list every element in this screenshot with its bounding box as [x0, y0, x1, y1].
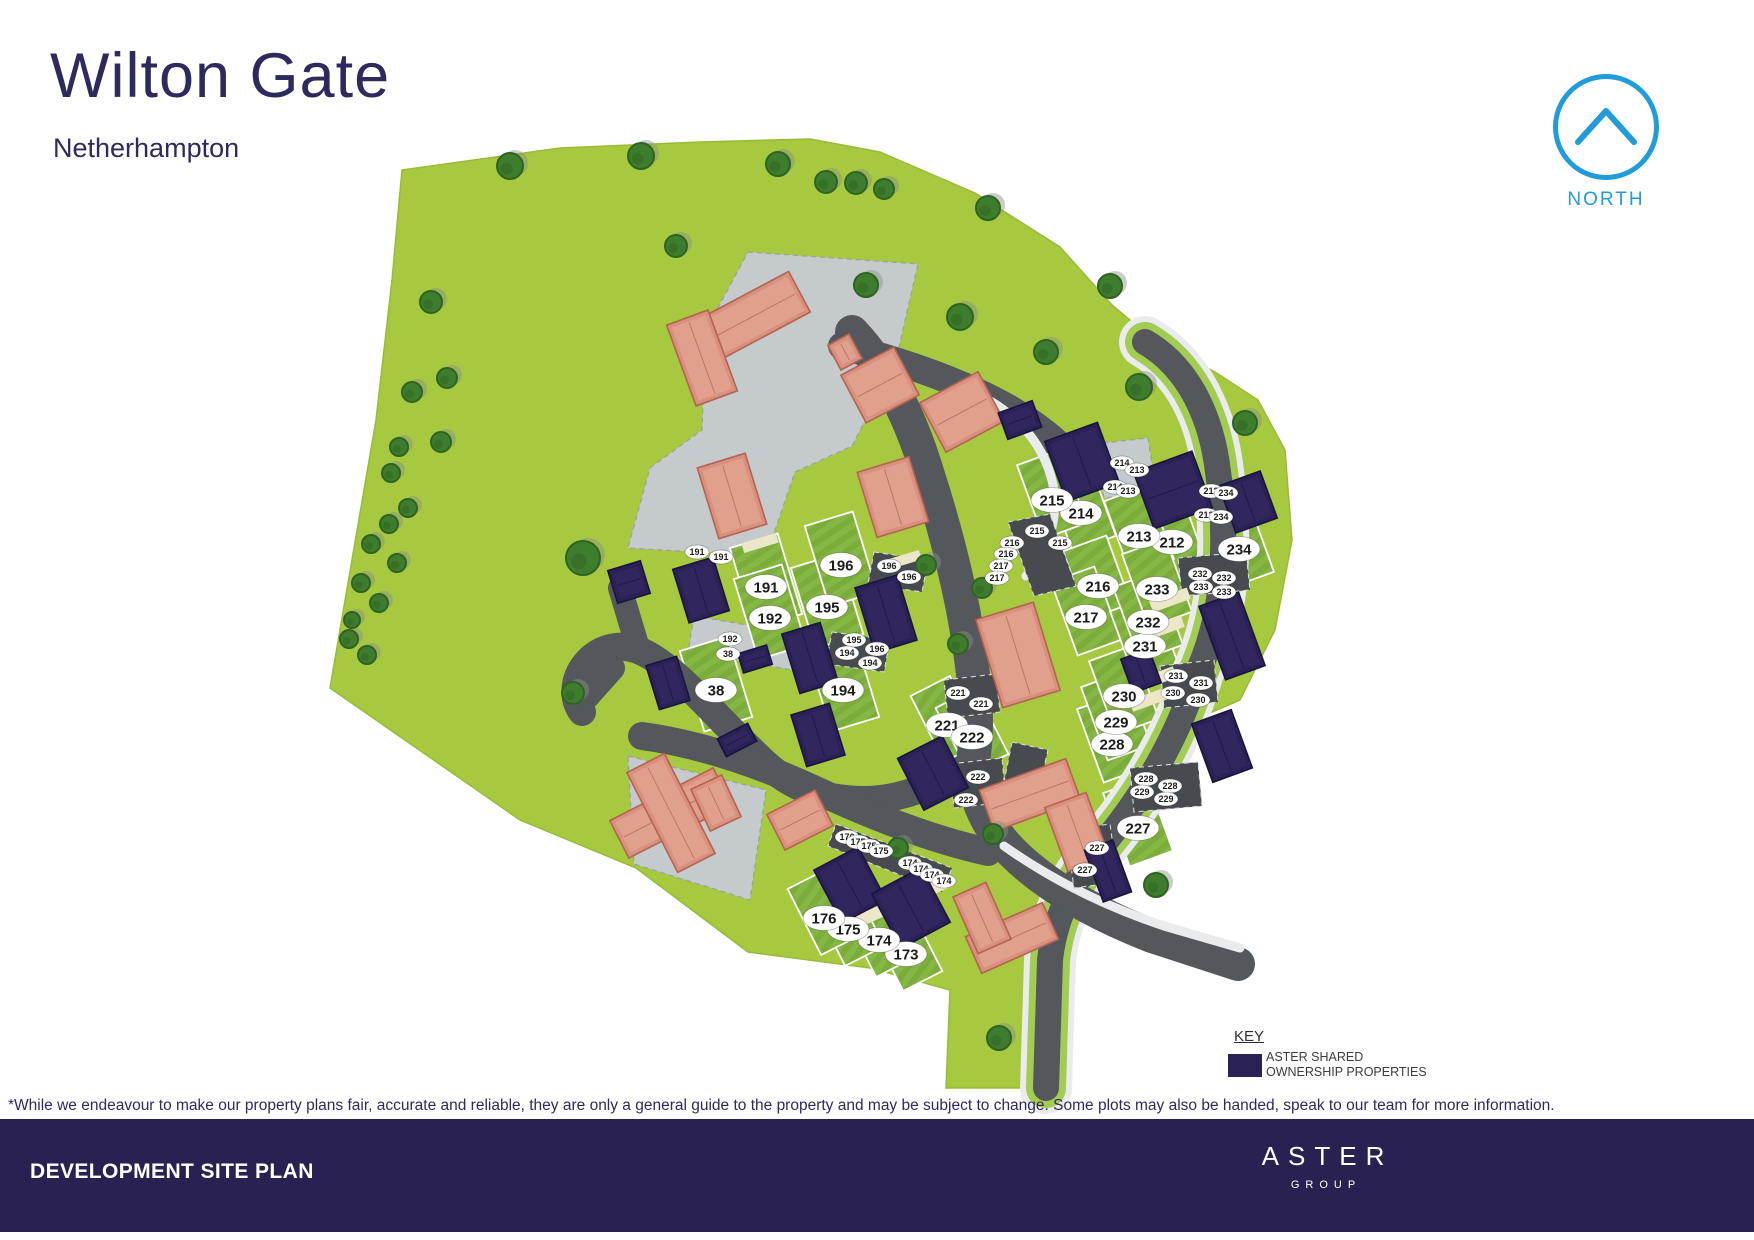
svg-text:194: 194	[830, 683, 856, 700]
building-shared-ownership	[1192, 710, 1253, 783]
parking-label-191: 191	[685, 545, 709, 559]
svg-text:233: 233	[1144, 582, 1169, 599]
svg-text:38: 38	[723, 649, 733, 659]
svg-text:234: 234	[1226, 542, 1252, 559]
svg-text:38: 38	[708, 683, 725, 700]
svg-text:191: 191	[753, 580, 778, 597]
svg-text:234: 234	[1213, 512, 1228, 522]
svg-text:191: 191	[713, 552, 728, 562]
svg-text:228: 228	[1162, 781, 1177, 791]
svg-text:174: 174	[866, 933, 892, 950]
svg-text:213: 213	[1129, 465, 1144, 475]
svg-text:221: 221	[950, 688, 965, 698]
svg-text:232: 232	[1135, 615, 1160, 632]
plot-label-213: 213	[1118, 524, 1160, 549]
parking-label-192: 192	[718, 632, 742, 646]
svg-text:229: 229	[1158, 794, 1173, 804]
parking-label-228: 228	[1134, 772, 1158, 786]
parking-label-222: 222	[966, 770, 990, 784]
svg-text:173: 173	[893, 947, 918, 964]
svg-text:194: 194	[839, 648, 854, 658]
parking-label-231: 231	[1164, 669, 1188, 683]
key-swatch-shared-ownership	[1228, 1054, 1262, 1077]
svg-text:234: 234	[1218, 488, 1233, 498]
page: Wilton Gate Netherhampton NORTH	[0, 0, 1754, 1240]
svg-text:216: 216	[1004, 538, 1019, 548]
parking-label-195: 195	[842, 633, 866, 647]
svg-text:231: 231	[1168, 671, 1183, 681]
parking-label-196: 196	[897, 570, 921, 584]
svg-text:229: 229	[1103, 715, 1128, 732]
plot-label-195: 195	[806, 595, 848, 620]
parking-label-38: 38	[716, 647, 740, 661]
svg-text:214: 214	[1068, 506, 1094, 523]
parking-label-234: 234	[1209, 510, 1233, 524]
plot-label-222: 222	[951, 725, 993, 750]
parking-label-221: 221	[946, 686, 970, 700]
parking-label-232: 232	[1212, 571, 1236, 585]
plot-label-228: 228	[1091, 732, 1133, 757]
svg-text:233: 233	[1193, 582, 1208, 592]
parking-label-194: 194	[835, 646, 859, 660]
brand-sub: GROUP	[1248, 1179, 1398, 1191]
key-label: ASTER SHARED OWNERSHIP PROPERTIES	[1266, 1050, 1427, 1080]
plot-label-192: 192	[749, 606, 791, 631]
footer-title: DEVELOPMENT SITE PLAN	[30, 1160, 314, 1184]
parking-label-216: 216	[994, 547, 1018, 561]
key-label-line2: OWNERSHIP PROPERTIES	[1266, 1065, 1427, 1080]
svg-text:215: 215	[1039, 493, 1064, 510]
svg-text:191: 191	[689, 547, 704, 557]
svg-text:217: 217	[993, 561, 1008, 571]
svg-text:215: 215	[1052, 538, 1067, 548]
tree-icon	[1098, 271, 1127, 298]
parking-label-194: 194	[858, 656, 882, 670]
svg-text:230: 230	[1111, 689, 1136, 706]
svg-text:216: 216	[1085, 579, 1110, 596]
plot-label-191: 191	[745, 575, 787, 600]
svg-text:228: 228	[1138, 774, 1153, 784]
svg-text:195: 195	[846, 635, 861, 645]
parking-label-227: 227	[1085, 841, 1109, 855]
parking-label-196: 196	[877, 559, 901, 573]
parking-label-215: 215	[1025, 524, 1049, 538]
svg-text:231: 231	[1193, 678, 1208, 688]
parking-label-231: 231	[1189, 676, 1213, 690]
svg-text:196: 196	[869, 644, 884, 654]
brand-logo: ASTER GROUP	[1248, 1141, 1398, 1191]
svg-text:232: 232	[1192, 569, 1207, 579]
plot-label-196: 196	[820, 553, 862, 578]
parking-label-222: 222	[954, 793, 978, 807]
svg-text:233: 233	[1216, 587, 1231, 597]
svg-text:192: 192	[757, 611, 782, 628]
svg-text:196: 196	[901, 572, 916, 582]
plot-label-233: 233	[1136, 577, 1178, 602]
svg-text:174: 174	[936, 876, 951, 886]
svg-text:213: 213	[1126, 529, 1151, 546]
plot-label-194: 194	[822, 678, 864, 703]
plot-label-234: 234	[1218, 537, 1260, 562]
key-label-line1: ASTER SHARED	[1266, 1050, 1427, 1065]
parking-label-213: 213	[1116, 484, 1140, 498]
svg-text:230: 230	[1190, 695, 1205, 705]
parking-label-233: 233	[1189, 580, 1213, 594]
svg-text:196: 196	[828, 558, 853, 575]
parking-label-233: 233	[1212, 585, 1236, 599]
parking-label-191: 191	[709, 550, 733, 564]
svg-text:229: 229	[1134, 787, 1149, 797]
brand-name: ASTER	[1248, 1141, 1398, 1172]
svg-text:217: 217	[1073, 610, 1098, 627]
plot-label-217: 217	[1065, 605, 1107, 630]
plot-label-232: 232	[1127, 610, 1169, 635]
svg-text:227: 227	[1077, 865, 1092, 875]
svg-text:194: 194	[862, 658, 877, 668]
parking-label-228: 228	[1158, 779, 1182, 793]
svg-text:192: 192	[722, 634, 737, 644]
svg-text:232: 232	[1216, 573, 1231, 583]
parking-label-229: 229	[1154, 792, 1178, 806]
svg-text:216: 216	[998, 549, 1013, 559]
svg-text:176: 176	[811, 911, 836, 928]
plot-label-229: 229	[1095, 710, 1137, 735]
parking-label-217: 217	[989, 559, 1013, 573]
plot-label-230: 230	[1103, 684, 1145, 709]
svg-text:227: 227	[1089, 843, 1104, 853]
disclaimer-text: *While we endeavour to make our property…	[8, 1097, 1748, 1115]
parking-label-175: 175	[869, 844, 893, 858]
plot-label-215: 215	[1031, 488, 1073, 513]
parking-label-213: 213	[1125, 463, 1149, 477]
plot-label-216: 216	[1077, 574, 1119, 599]
parking-label-174: 174	[932, 874, 956, 888]
plot-label-176: 176	[803, 906, 845, 931]
parking-label-221: 221	[969, 697, 993, 711]
tree-icon	[1144, 870, 1173, 897]
parking-label-227: 227	[1073, 863, 1097, 877]
svg-text:227: 227	[1125, 821, 1150, 838]
svg-text:222: 222	[959, 730, 984, 747]
svg-text:230: 230	[1165, 688, 1180, 698]
svg-text:175: 175	[873, 846, 888, 856]
parking-label-230: 230	[1186, 693, 1210, 707]
parking-label-215: 215	[1048, 536, 1072, 550]
plot-label-38: 38	[695, 678, 737, 703]
key-title: KEY	[1234, 1028, 1264, 1045]
key: KEY ASTER SHARED OWNERSHIP PROPERTIES	[1228, 1028, 1538, 1080]
svg-text:231: 231	[1132, 639, 1157, 656]
footer-bar: DEVELOPMENT SITE PLAN ASTER GROUP	[0, 1119, 1754, 1232]
svg-text:215: 215	[1029, 526, 1044, 536]
svg-text:221: 221	[973, 699, 988, 709]
parking-label-196: 196	[865, 642, 889, 656]
svg-text:222: 222	[958, 795, 973, 805]
parking-label-234: 234	[1214, 486, 1238, 500]
plot-label-231: 231	[1124, 634, 1166, 659]
svg-text:196: 196	[881, 561, 896, 571]
plot-label-227: 227	[1117, 816, 1159, 841]
svg-text:217: 217	[989, 573, 1004, 583]
parking-label-230: 230	[1161, 686, 1185, 700]
parking-label-232: 232	[1188, 567, 1212, 581]
parking-label-229: 229	[1130, 785, 1154, 799]
svg-text:213: 213	[1120, 486, 1135, 496]
svg-text:222: 222	[970, 772, 985, 782]
svg-text:195: 195	[814, 600, 839, 617]
svg-text:228: 228	[1099, 737, 1124, 754]
svg-text:212: 212	[1159, 535, 1184, 552]
parking-label-217: 217	[985, 571, 1009, 585]
